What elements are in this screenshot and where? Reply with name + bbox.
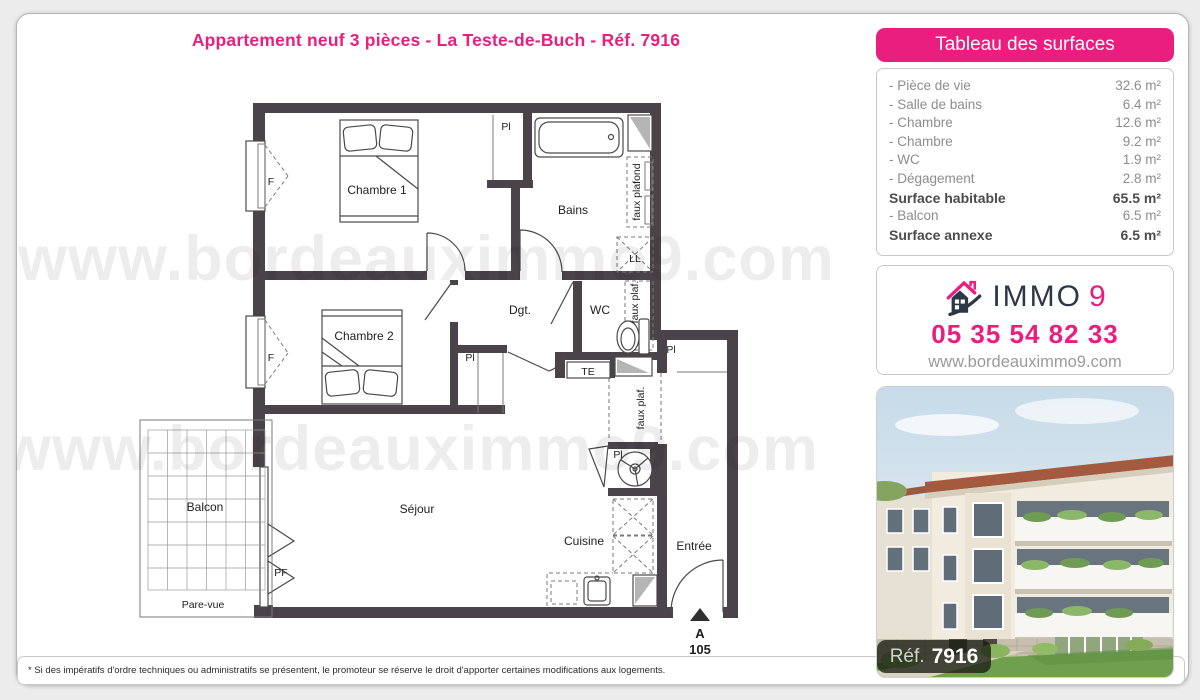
label-placard: Pl xyxy=(465,352,474,364)
room-label-wc: WC xyxy=(590,303,610,317)
room-label-bains: Bains xyxy=(558,203,588,217)
label-washer: LL xyxy=(629,253,641,265)
bed-icon xyxy=(340,120,418,222)
label-placard: Pl xyxy=(666,344,675,356)
reference-badge: Réf. 7916 xyxy=(877,640,991,673)
brand-digit: 9 xyxy=(1089,280,1107,314)
surface-row-value: 9.2 m² xyxy=(1123,133,1161,152)
agency-website: www.bordeauximmo9.com xyxy=(877,353,1173,372)
surface-row-value: 6.5 m² xyxy=(1123,207,1161,226)
label-electrical: TE xyxy=(581,366,594,378)
flyer-page: Chambre 1 Chambre 2 Bains Dgt. WC Séjour… xyxy=(0,0,1200,700)
surfaces-rows: - Pièce de vie32.6 m²- Salle de bains6.4… xyxy=(889,77,1161,244)
surface-row: - Salle de bains6.4 m² xyxy=(889,96,1161,115)
label-placard: Pl xyxy=(501,121,510,133)
room-label-sejour: Séjour xyxy=(400,502,435,516)
bathtub-icon xyxy=(535,118,623,157)
surface-row-value: 65.5 m² xyxy=(1113,189,1161,208)
surface-row-label: - Balcon xyxy=(889,207,939,226)
house-logo-icon xyxy=(943,278,985,316)
surface-row: - Dégagement2.8 m² xyxy=(889,170,1161,189)
surface-row-value: 1.9 m² xyxy=(1123,151,1161,170)
agency-phone: 05 35 54 82 33 xyxy=(877,319,1173,350)
surface-row: Surface annexe6.5 m² xyxy=(889,226,1161,245)
surface-row: - Pièce de vie32.6 m² xyxy=(889,77,1161,96)
agency-logo: IMMO 9 xyxy=(877,278,1173,316)
room-label-chambre2: Chambre 2 xyxy=(334,329,394,343)
surface-row-label: - Dégagement xyxy=(889,170,975,189)
bed-icon xyxy=(322,310,402,404)
surface-row-value: 2.8 m² xyxy=(1123,170,1161,189)
building-photo: Réf. 7916 xyxy=(876,386,1174,678)
surface-row-value: 12.6 m² xyxy=(1115,114,1161,133)
footer-note: * Si des impératifs d'ordre techniques o… xyxy=(18,665,665,676)
agency-panel: IMMO 9 05 35 54 82 33 www.bordeauximmo9.… xyxy=(876,265,1174,375)
duct-icon xyxy=(615,357,652,376)
surface-row-label: - Chambre xyxy=(889,133,953,152)
reference-number: 7916 xyxy=(932,645,979,669)
surface-row-label: Surface habitable xyxy=(889,189,1006,208)
surfaces-table: - Pièce de vie32.6 m²- Salle de bains6.4… xyxy=(876,68,1174,256)
surfaces-panel-header: Tableau des surfaces xyxy=(876,28,1174,62)
label-french-door: PF xyxy=(274,567,287,579)
room-label-degagement: Dgt. xyxy=(509,303,531,317)
surface-row: Surface habitable65.5 m² xyxy=(889,189,1161,208)
room-label-entree: Entrée xyxy=(676,539,712,553)
duct-icon xyxy=(633,575,657,606)
unit-number: 105 xyxy=(689,642,711,657)
label-window: F xyxy=(268,176,274,188)
room-label-chambre1: Chambre 1 xyxy=(347,183,407,197)
surface-row: - Chambre12.6 m² xyxy=(889,114,1161,133)
room-label-cuisine: Cuisine xyxy=(564,534,604,548)
surface-row: - Balcon6.5 m² xyxy=(889,207,1161,226)
surface-row-label: - Chambre xyxy=(889,114,953,133)
surface-row: - Chambre9.2 m² xyxy=(889,133,1161,152)
label-false-ceiling: faux plaf. xyxy=(629,281,641,324)
surface-row-label: - Pièce de vie xyxy=(889,77,971,96)
surface-row-label: Surface annexe xyxy=(889,226,993,245)
label-false-ceiling: faux plaf. xyxy=(635,387,647,430)
reference-label: Réf. xyxy=(890,646,925,668)
building-illustration xyxy=(877,387,1174,678)
label-window: F xyxy=(268,352,274,364)
surface-row-label: - WC xyxy=(889,151,920,170)
surface-row-value: 6.4 m² xyxy=(1123,96,1161,115)
surface-row: - WC1.9 m² xyxy=(889,151,1161,170)
surface-row-value: 6.5 m² xyxy=(1121,226,1161,245)
entrance-letter: A xyxy=(695,626,705,641)
room-label-balcon: Balcon xyxy=(187,500,224,514)
duct-icon xyxy=(628,115,652,151)
label-pare-vue: Pare-vue xyxy=(182,599,225,611)
entrance-arrow-icon xyxy=(690,608,710,621)
label-placard: Pl xyxy=(613,449,622,461)
surface-row-value: 32.6 m² xyxy=(1115,77,1161,96)
label-false-ceiling: faux plafond xyxy=(631,163,643,220)
surface-row-label: - Salle de bains xyxy=(889,96,982,115)
balcony-grid xyxy=(140,420,272,617)
brand-word: IMMO xyxy=(992,280,1082,314)
